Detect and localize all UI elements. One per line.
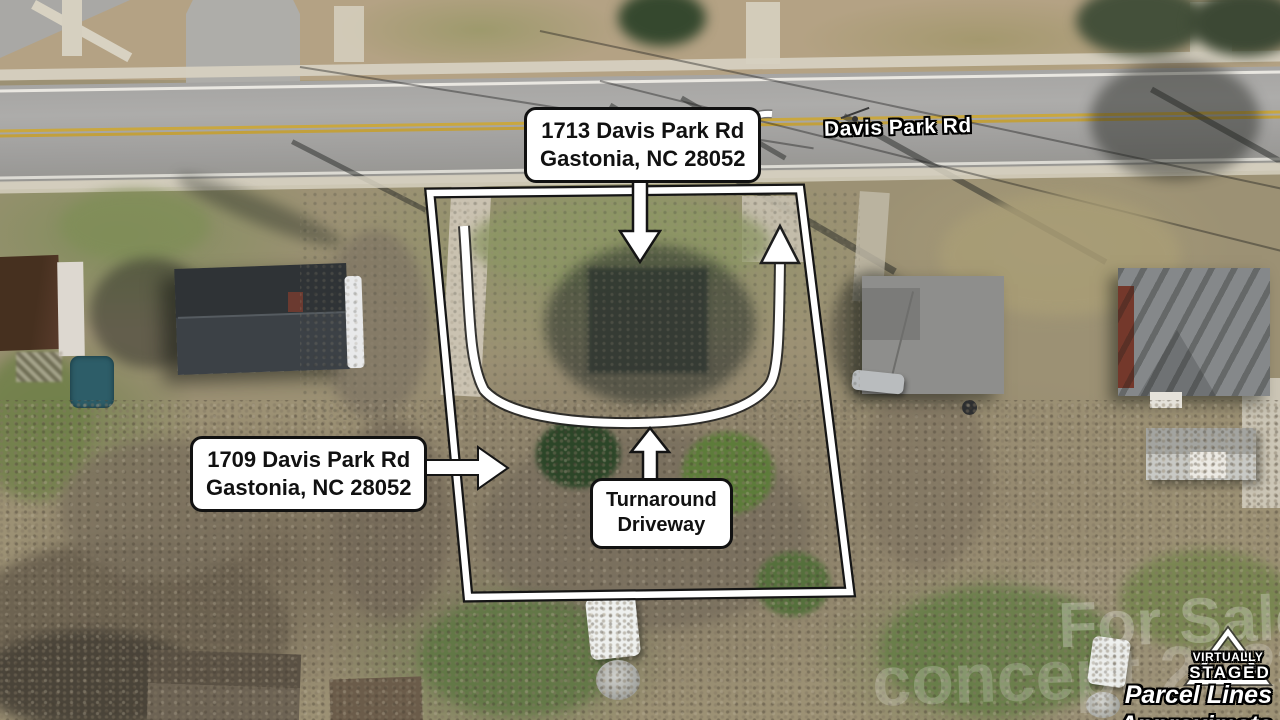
parcel-disclaimer-line1: Parcel Lines xyxy=(1119,681,1272,711)
virtually-staged-badge xyxy=(0,0,1280,720)
parcel-disclaimer: Parcel Lines Approximate xyxy=(1119,681,1272,720)
badge-staged: STAGED xyxy=(1189,663,1271,683)
parcel-disclaimer-line2: Approximate xyxy=(1119,711,1272,720)
aerial-photo: For Sale concept 2023 1713 Davis Park Rd… xyxy=(0,0,1280,720)
badge-virtually: VIRTUALLY xyxy=(1193,650,1264,664)
